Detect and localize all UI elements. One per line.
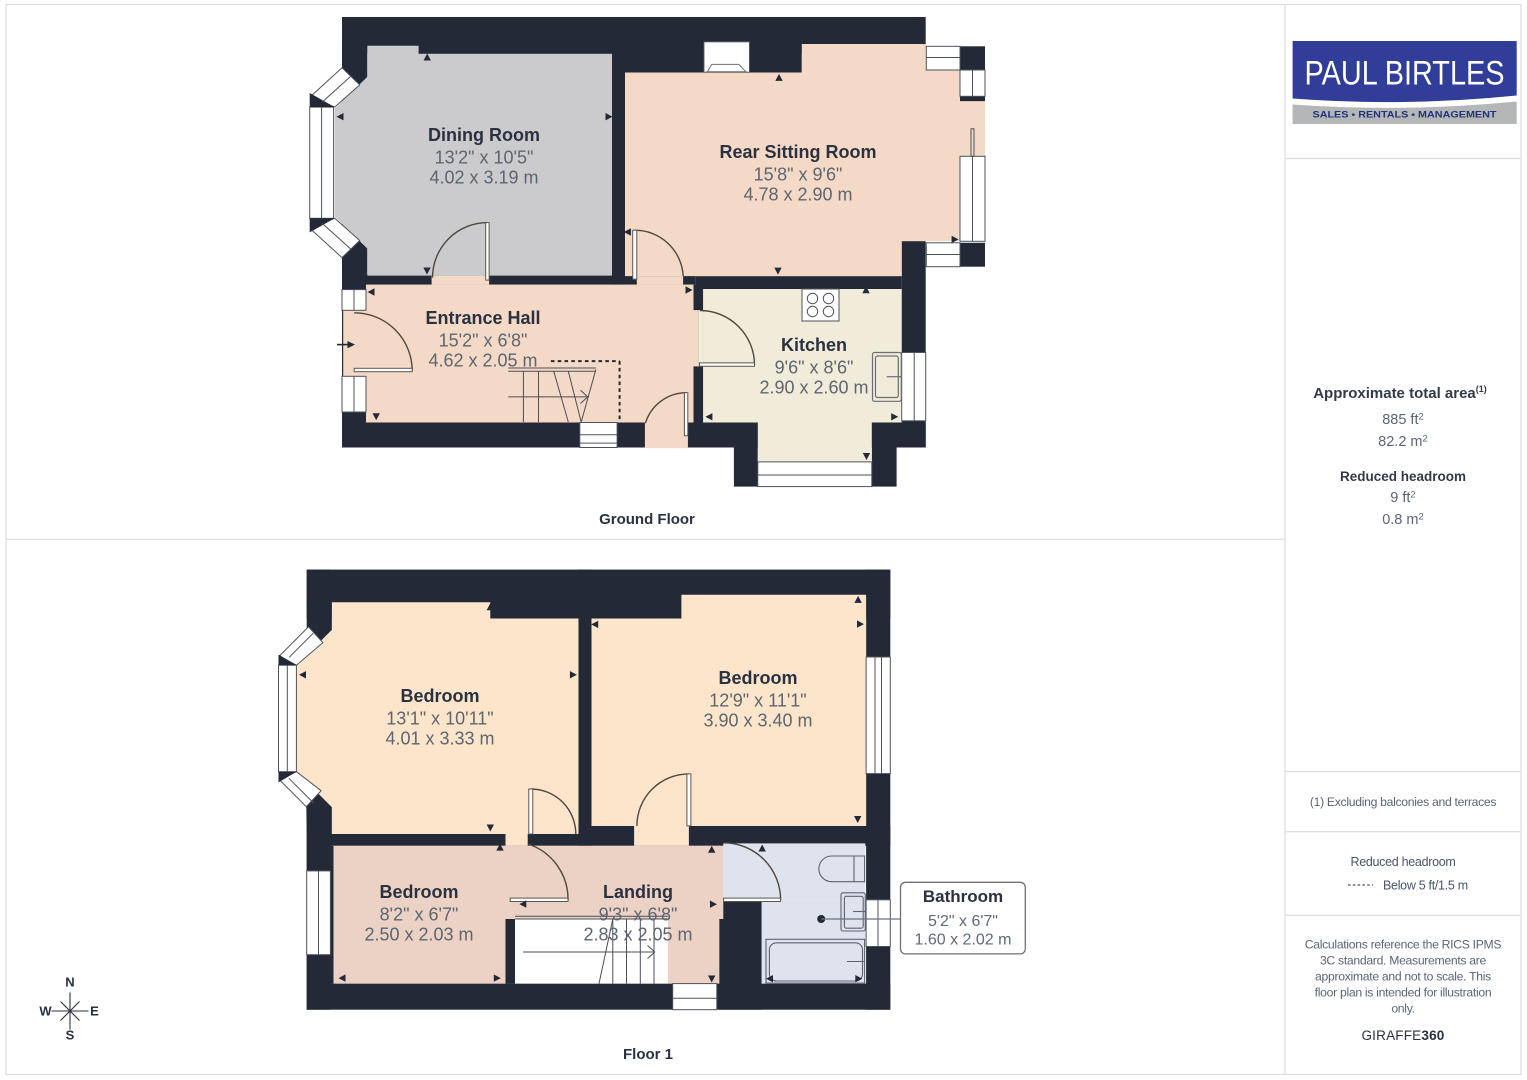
svg-text:4.01 x 3.33 m: 4.01 x 3.33 m [385, 729, 494, 749]
svg-text:3C standard. Measurements are: 3C standard. Measurements are [1320, 954, 1487, 968]
svg-text:15'2" x 6'8": 15'2" x 6'8" [439, 331, 528, 351]
svg-text:3.90 x 3.40 m: 3.90 x 3.40 m [703, 711, 812, 731]
svg-text:Approximate total area(1): Approximate total area(1) [1313, 384, 1487, 402]
svg-text:Bedroom: Bedroom [718, 668, 797, 688]
svg-text:5'2" x 6'7": 5'2" x 6'7" [928, 913, 998, 930]
svg-text:1.60 x 2.02 m: 1.60 x 2.02 m [915, 932, 1012, 949]
svg-text:15'8" x 9'6": 15'8" x 9'6" [754, 165, 843, 185]
svg-text:12'9" x 11'1": 12'9" x 11'1" [709, 691, 806, 711]
svg-text:13'2" x 10'5": 13'2" x 10'5" [435, 148, 534, 168]
svg-text:13'1" x 10'11": 13'1" x 10'11" [386, 709, 493, 729]
svg-text:Ground Floor: Ground Floor [599, 511, 695, 528]
svg-text:Calculations reference the RIC: Calculations reference the RICS IPMS [1305, 938, 1502, 952]
svg-text:4.78 x 2.90 m: 4.78 x 2.90 m [743, 185, 852, 205]
svg-text:Rear Sitting Room: Rear Sitting Room [719, 142, 876, 162]
svg-text:Landing: Landing [603, 882, 673, 902]
svg-text:2.50 x 2.03 m: 2.50 x 2.03 m [364, 925, 473, 945]
svg-text:E: E [90, 1004, 99, 1019]
svg-text:9 ft2: 9 ft2 [1390, 490, 1415, 507]
svg-text:S: S [66, 1028, 75, 1043]
svg-text:(1) Excluding balconies and te: (1) Excluding balconies and terraces [1310, 795, 1497, 809]
svg-text:SALES • RENTALS • MANAGEMENT: SALES • RENTALS • MANAGEMENT [1313, 110, 1497, 120]
svg-text:Floor 1: Floor 1 [623, 1046, 673, 1063]
svg-text:Bedroom: Bedroom [379, 882, 458, 902]
svg-text:Bathroom: Bathroom [923, 887, 1003, 906]
svg-text:W: W [39, 1004, 52, 1019]
svg-text:885 ft2: 885 ft2 [1382, 412, 1424, 429]
svg-text:82.2 m2: 82.2 m2 [1378, 434, 1428, 451]
svg-text:2.90 x 2.60 m: 2.90 x 2.60 m [759, 378, 868, 398]
svg-text:Entrance Hall: Entrance Hall [425, 308, 540, 328]
svg-text:Dining Room: Dining Room [428, 125, 540, 145]
svg-text:2.83 x 2.05 m: 2.83 x 2.05 m [583, 925, 692, 945]
svg-text:Bedroom: Bedroom [400, 686, 479, 706]
svg-text:9'3" x 6'8": 9'3" x 6'8" [599, 905, 678, 925]
svg-text:only.: only. [1391, 1002, 1414, 1016]
svg-text:Reduced headroom: Reduced headroom [1340, 469, 1466, 484]
svg-text:Kitchen: Kitchen [781, 335, 847, 355]
svg-text:floor plan is intended for ill: floor plan is intended for illustration [1315, 986, 1492, 1000]
svg-text:approximate and not to scale.: approximate and not to scale. This [1315, 970, 1491, 984]
svg-text:N: N [65, 975, 74, 990]
svg-text:8'2" x 6'7": 8'2" x 6'7" [380, 905, 459, 925]
svg-text:Below 5 ft/1.5 m: Below 5 ft/1.5 m [1383, 879, 1468, 893]
svg-text:PAUL BIRTLES: PAUL BIRTLES [1305, 55, 1505, 93]
svg-text:4.02 x 3.19 m: 4.02 x 3.19 m [429, 168, 538, 188]
svg-text:GIRAFFE360: GIRAFFE360 [1361, 1028, 1444, 1043]
svg-text:0.8 m2: 0.8 m2 [1382, 512, 1424, 529]
svg-text:9'6" x 8'6": 9'6" x 8'6" [775, 358, 854, 378]
svg-text:Reduced headroom: Reduced headroom [1351, 855, 1456, 869]
svg-text:4.62 x 2.05 m: 4.62 x 2.05 m [428, 351, 537, 371]
